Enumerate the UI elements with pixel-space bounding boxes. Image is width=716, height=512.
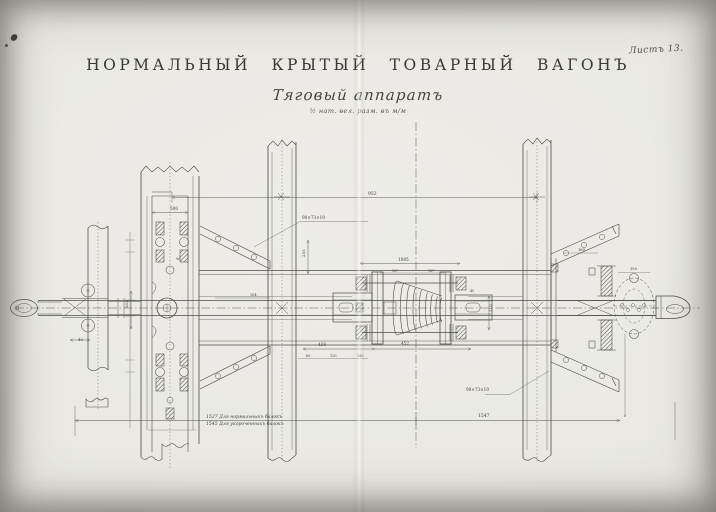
- dimension-label: 140: [357, 354, 363, 358]
- dimension-label: 187: [428, 269, 434, 273]
- technical-drawing: 1527 Для нормальныхъ балокъ 1545 Для уко…: [0, 0, 716, 512]
- dimension-label: 500: [170, 206, 178, 211]
- drawing-sheet: НОРМАЛЬНЫЙ КРЫТЫЙ ТОВАРНЫЙ ВАГОНЪ Тяговы…: [0, 0, 716, 512]
- dimension-label: 187: [392, 269, 398, 273]
- dimension-label: 45: [470, 289, 474, 293]
- ink-speck: [5, 44, 8, 47]
- dimension-label: 40: [78, 337, 84, 342]
- headstock-plate: [125, 166, 199, 461]
- dimension-label: 438: [318, 342, 326, 347]
- dimension-label: 1085: [398, 257, 409, 262]
- dimension-label: 210: [488, 304, 493, 312]
- dimension-label: 160: [578, 248, 586, 252]
- left-draw-hook: [11, 284, 142, 332]
- dimension-label: 452: [401, 341, 409, 346]
- buffer-beam: [86, 225, 108, 407]
- dimension-label: 255: [301, 249, 306, 257]
- dimension-label: 90×73×10: [302, 215, 325, 220]
- dimension-label: 90: [176, 257, 180, 261]
- bottom-note-line2: 1545 Для укороченныхъ балокъ: [206, 420, 284, 427]
- dimension-label: 90×73×10: [466, 387, 489, 392]
- center-lines: [15, 122, 700, 468]
- dimension-label: 952: [368, 191, 377, 197]
- bottom-note-line1: 1527 Для нормальныхъ балокъ: [206, 413, 282, 420]
- dimension-label: 202: [124, 300, 129, 308]
- right-cross-beam: [523, 138, 558, 462]
- dimension-label: 150: [630, 267, 638, 271]
- dimension-label: 65: [306, 354, 310, 358]
- dimension-label: 1547: [478, 413, 490, 419]
- dimension-label: 120: [330, 354, 336, 358]
- dimension-label: 104: [250, 293, 256, 297]
